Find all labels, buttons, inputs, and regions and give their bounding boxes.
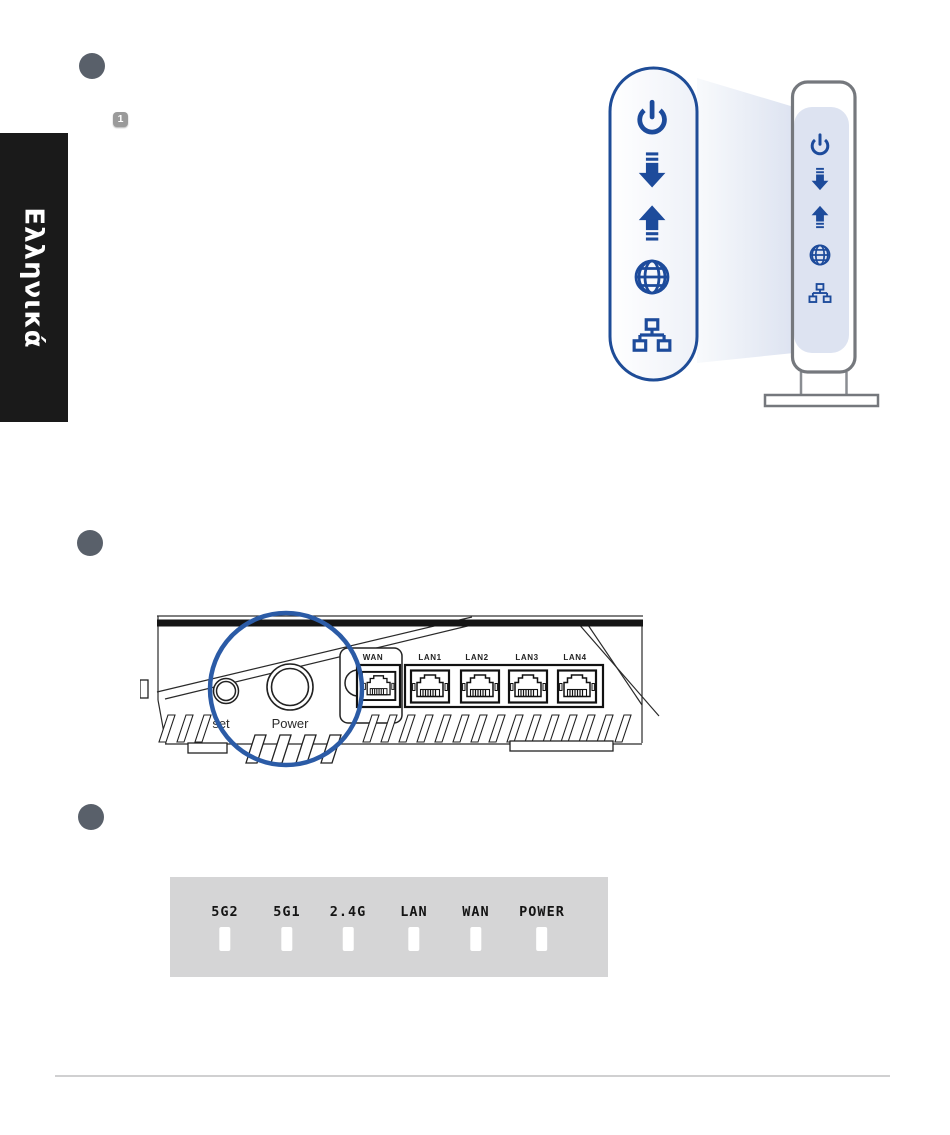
led-wan-label: WAN (462, 904, 489, 920)
router-rear-illustration: WAN LAN1 LAN2 LAN3 LAN4 (140, 595, 675, 795)
lan1-port-label: LAN1 (418, 653, 441, 662)
led-slot (470, 927, 481, 951)
mount-foot-right (510, 741, 613, 751)
led-24g-label: 2.4G (330, 904, 367, 920)
led-slot (281, 927, 292, 951)
lan2-port (461, 671, 499, 703)
quick-start-guide-page: Ελληνικά 1 (0, 0, 950, 1135)
led-5g1: 5G1 (273, 904, 300, 951)
led-slot (342, 927, 353, 951)
led-power-label: POWER (519, 904, 565, 920)
wan-port-label: WAN (363, 653, 383, 662)
reset-button (214, 679, 239, 704)
top-band (157, 620, 643, 627)
lan4-port-label: LAN4 (563, 653, 586, 662)
language-tab: Ελληνικά (0, 133, 68, 422)
led-5g2-label: 5G2 (211, 904, 238, 920)
front-led-panel: 5G2 5G1 2.4G LAN WAN POWER (170, 877, 608, 977)
led-wan: WAN (462, 904, 489, 951)
led-5g1-label: 5G1 (273, 904, 300, 920)
footer-divider (55, 1075, 890, 1077)
power-button-label: Power (272, 716, 310, 731)
lan3-port (509, 671, 547, 703)
led-power: POWER (519, 904, 565, 951)
wan-port (362, 672, 395, 700)
led-slot (219, 927, 230, 951)
led-24g: 2.4G (330, 904, 367, 951)
led-lan: LAN (400, 904, 427, 951)
step-1-circle (79, 53, 105, 79)
lan2-port-label: LAN2 (465, 653, 488, 662)
modem-stand (765, 372, 878, 406)
led-slot (408, 927, 419, 951)
magnifier-beam (697, 78, 794, 363)
led-slot (536, 927, 547, 951)
sub-step-1-badge: 1 (113, 112, 128, 127)
step-2-circle (77, 530, 103, 556)
mount-foot-left (188, 743, 227, 753)
lan4-port (558, 671, 596, 703)
power-button (267, 664, 313, 710)
lan3-port-label: LAN3 (515, 653, 538, 662)
led-5g2: 5G2 (211, 904, 238, 951)
side-bracket (140, 680, 148, 698)
lan1-port (411, 671, 449, 703)
step-3-circle (78, 804, 104, 830)
modem-led-illustration (590, 45, 920, 410)
led-lan-label: LAN (400, 904, 427, 920)
language-tab-label: Ελληνικά (19, 207, 49, 348)
